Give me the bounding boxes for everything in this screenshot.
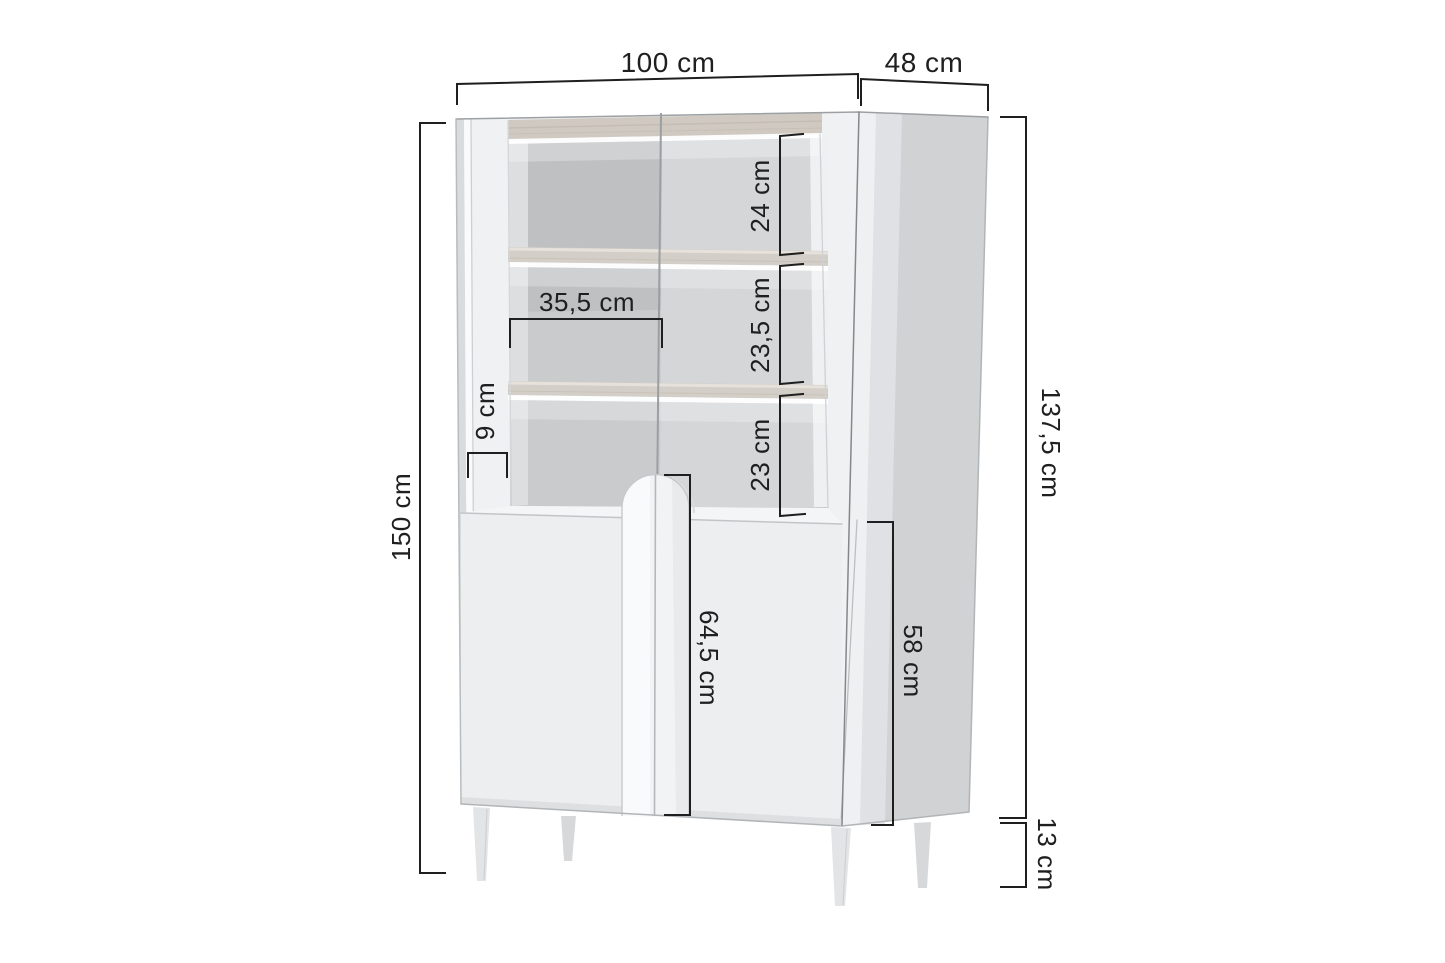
door-handle-arch [622, 475, 694, 818]
dim-door-height-label: 64,5 cm [694, 610, 724, 706]
dim-body-height: 137,5 cm [1000, 117, 1066, 818]
leg-back-right [914, 822, 931, 888]
leg-back-left [561, 816, 576, 861]
dim-width-front: 100 cm [457, 47, 858, 104]
dim-stile-width-label: 9 cm [470, 382, 500, 440]
dim-shelf-top-label: 24 cm [745, 159, 775, 232]
cabinet [456, 112, 988, 906]
dim-inner-width-label: 35,5 cm [539, 287, 635, 317]
dim-base-height-label: 58 cm [898, 624, 928, 697]
dim-shelf-middle-label: 23,5 cm [745, 277, 775, 373]
dim-width-label: 100 cm [621, 47, 716, 78]
cabinet-dimension-diagram: 100 cm 48 cm 150 cm 137,5 cm 13 cm 24 cm [0, 0, 1445, 963]
dim-legs-height-label: 13 cm [1032, 817, 1062, 890]
dim-depth-side: 48 cm [861, 47, 988, 110]
dim-legs-height: 13 cm [1001, 817, 1062, 890]
leg-front-left [473, 807, 490, 881]
dim-depth-label: 48 cm [885, 47, 964, 78]
dim-shelf-bottom-label: 23 cm [745, 418, 775, 491]
cabinet-side-panel [842, 112, 988, 826]
leg-front-right [831, 827, 851, 906]
dim-body-height-label: 137,5 cm [1036, 388, 1066, 499]
dim-height-label: 150 cm [386, 473, 416, 561]
top-wood-panel [508, 113, 822, 162]
dim-height-total: 150 cm [386, 123, 445, 873]
diagram-canvas: 100 cm 48 cm 150 cm 137,5 cm 13 cm 24 cm [0, 0, 1445, 963]
